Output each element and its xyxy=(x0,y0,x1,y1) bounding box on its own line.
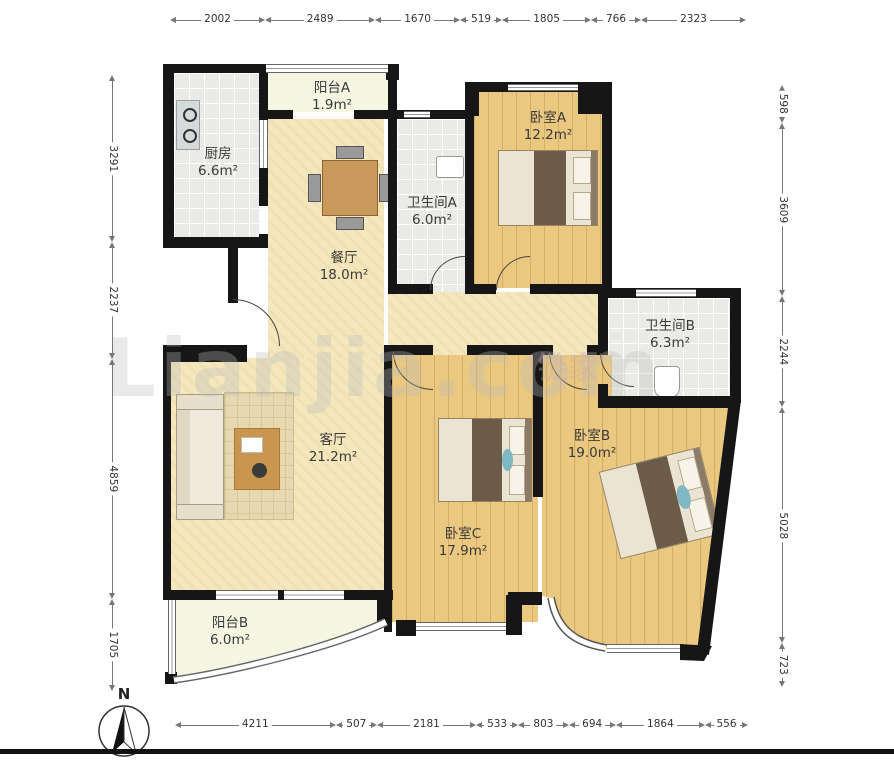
window xyxy=(168,600,176,674)
dimension-value: 2244 xyxy=(776,335,788,368)
dimension-value: 507 xyxy=(343,719,369,731)
dining-chair xyxy=(336,146,364,159)
door-opening xyxy=(259,206,268,234)
dining-chair xyxy=(336,217,364,230)
wall xyxy=(388,110,397,292)
wall xyxy=(384,345,392,632)
room-label-bedroom-c: 卧室C17.9m² xyxy=(428,526,498,561)
wall xyxy=(465,284,496,294)
dimension-value: 2181 xyxy=(410,719,443,731)
window xyxy=(266,64,388,73)
room-label-balcony-a: 阳台A1.9m² xyxy=(292,80,372,115)
dimension-value: 1805 xyxy=(530,14,563,26)
room-label-bathroom-a: 卫生间A6.0m² xyxy=(397,195,467,230)
dimension-segment: 1705 xyxy=(104,599,120,691)
wall xyxy=(163,237,268,248)
dimension-segment: 2181 xyxy=(377,717,476,733)
wall xyxy=(163,590,393,600)
burner-icon xyxy=(183,129,197,143)
dimension-value: 3609 xyxy=(776,193,788,226)
dimension-segment: 2489 xyxy=(265,12,375,28)
dimension-value: 1864 xyxy=(644,719,677,731)
wall xyxy=(377,596,389,622)
dimension-rail-bottom: 421150721815338036941864556 xyxy=(175,717,748,733)
dimension-segment: 3609 xyxy=(774,123,790,296)
dimension-value: 519 xyxy=(468,14,494,26)
wall xyxy=(508,592,542,605)
room-label-dining: 餐厅18.0m² xyxy=(308,250,380,285)
dimension-segment: 598 xyxy=(774,85,790,123)
window xyxy=(259,120,268,168)
dimension-segment: 2323 xyxy=(641,12,746,28)
tea-set-icon xyxy=(252,463,267,478)
dimension-segment: 1670 xyxy=(375,12,460,28)
wall xyxy=(163,345,247,362)
bed-bedroom-a xyxy=(498,150,598,226)
room-label-kitchen: 厨房6.6m² xyxy=(178,146,258,181)
dimension-segment: 1864 xyxy=(616,717,705,733)
dimension-segment: 5028 xyxy=(774,407,790,643)
room-label-balcony-b: 阳台B6.0m² xyxy=(196,615,264,650)
dimension-rail-left: 3291223748591705 xyxy=(104,75,120,691)
window xyxy=(636,289,696,297)
dimension-segment: 556 xyxy=(705,717,748,733)
dimension-value: 4859 xyxy=(106,462,118,495)
dimension-value: 2489 xyxy=(304,14,337,26)
dimension-value: 803 xyxy=(530,719,556,731)
bathroom-b-door-arc xyxy=(600,353,634,387)
corner-wall xyxy=(680,644,712,661)
dimension-segment: 694 xyxy=(569,717,616,733)
bottom-border-bar xyxy=(0,749,894,754)
dimension-segment: 723 xyxy=(774,643,790,687)
window xyxy=(216,590,278,600)
dimension-rail-right: 598360922445028723 xyxy=(774,85,790,687)
dimension-rail-top: 20022489167051918057662323 xyxy=(170,12,746,28)
dimension-value: 2002 xyxy=(201,14,234,26)
sink-bathroom-a xyxy=(436,156,464,178)
dimension-segment: 766 xyxy=(591,12,641,28)
dimension-value: 723 xyxy=(776,652,788,678)
dining-table xyxy=(322,160,378,216)
bed-bedroom-c xyxy=(438,418,532,502)
wall xyxy=(530,284,602,294)
window xyxy=(284,590,344,600)
wall xyxy=(259,110,293,119)
dimension-segment: 1805 xyxy=(502,12,591,28)
window xyxy=(508,84,578,91)
bedroom-b-curved-window xyxy=(548,598,605,651)
sofa xyxy=(176,394,224,520)
dimension-segment: 2237 xyxy=(104,242,120,359)
burner-icon xyxy=(183,108,197,122)
dimension-segment: 2244 xyxy=(774,296,790,408)
room-label-bedroom-b: 卧室B19.0m² xyxy=(556,428,628,463)
dimension-segment: 4211 xyxy=(175,717,336,733)
wall xyxy=(163,64,174,248)
dimension-value: 556 xyxy=(714,719,740,731)
dimension-segment: 4859 xyxy=(104,359,120,600)
bed-bedroom-b xyxy=(599,447,722,559)
floor-plan: 阳台A1.9m² 厨房6.6m² 卧室A12.2m² 卫生间A6.0m² 餐厅1… xyxy=(0,0,894,762)
dimension-value: 1670 xyxy=(401,14,434,26)
wall xyxy=(533,345,543,497)
window xyxy=(416,622,506,631)
toilet-bathroom-b xyxy=(654,366,680,398)
wall xyxy=(163,64,268,73)
dining-chair xyxy=(308,174,321,202)
dimension-value: 2237 xyxy=(106,284,118,317)
coffee-table xyxy=(234,428,280,490)
dimension-value: 598 xyxy=(776,91,788,117)
room-label-bedroom-a: 卧室A12.2m² xyxy=(506,110,590,145)
wall xyxy=(163,345,171,600)
dimension-segment: 3291 xyxy=(104,75,120,242)
dimension-value: 533 xyxy=(484,719,510,731)
dimension-value: 5028 xyxy=(776,509,788,542)
room-label-bathroom-b: 卫生间B6.3m² xyxy=(630,318,710,353)
wall xyxy=(730,288,741,403)
dimension-value: 694 xyxy=(579,719,605,731)
dimension-value: 3291 xyxy=(106,142,118,175)
dimension-value: 1705 xyxy=(106,629,118,662)
window xyxy=(607,644,683,653)
dimension-segment: 2002 xyxy=(170,12,265,28)
wall xyxy=(388,284,433,294)
room-label-living: 客厅21.2m² xyxy=(299,432,367,467)
bedroom-b-door-arc xyxy=(549,352,587,390)
dimension-segment: 533 xyxy=(476,717,518,733)
dimension-value: 2323 xyxy=(677,14,710,26)
window xyxy=(404,111,430,118)
wall xyxy=(396,620,416,636)
dimension-value: 766 xyxy=(603,14,629,26)
dimension-segment: 519 xyxy=(460,12,502,28)
dimension-segment: 803 xyxy=(518,717,568,733)
stove xyxy=(176,100,200,150)
wall xyxy=(228,245,238,303)
wall xyxy=(598,396,740,408)
dimension-value: 4211 xyxy=(239,719,272,731)
dining-floor xyxy=(268,119,384,362)
wall xyxy=(602,82,612,294)
dimension-segment: 507 xyxy=(336,717,377,733)
